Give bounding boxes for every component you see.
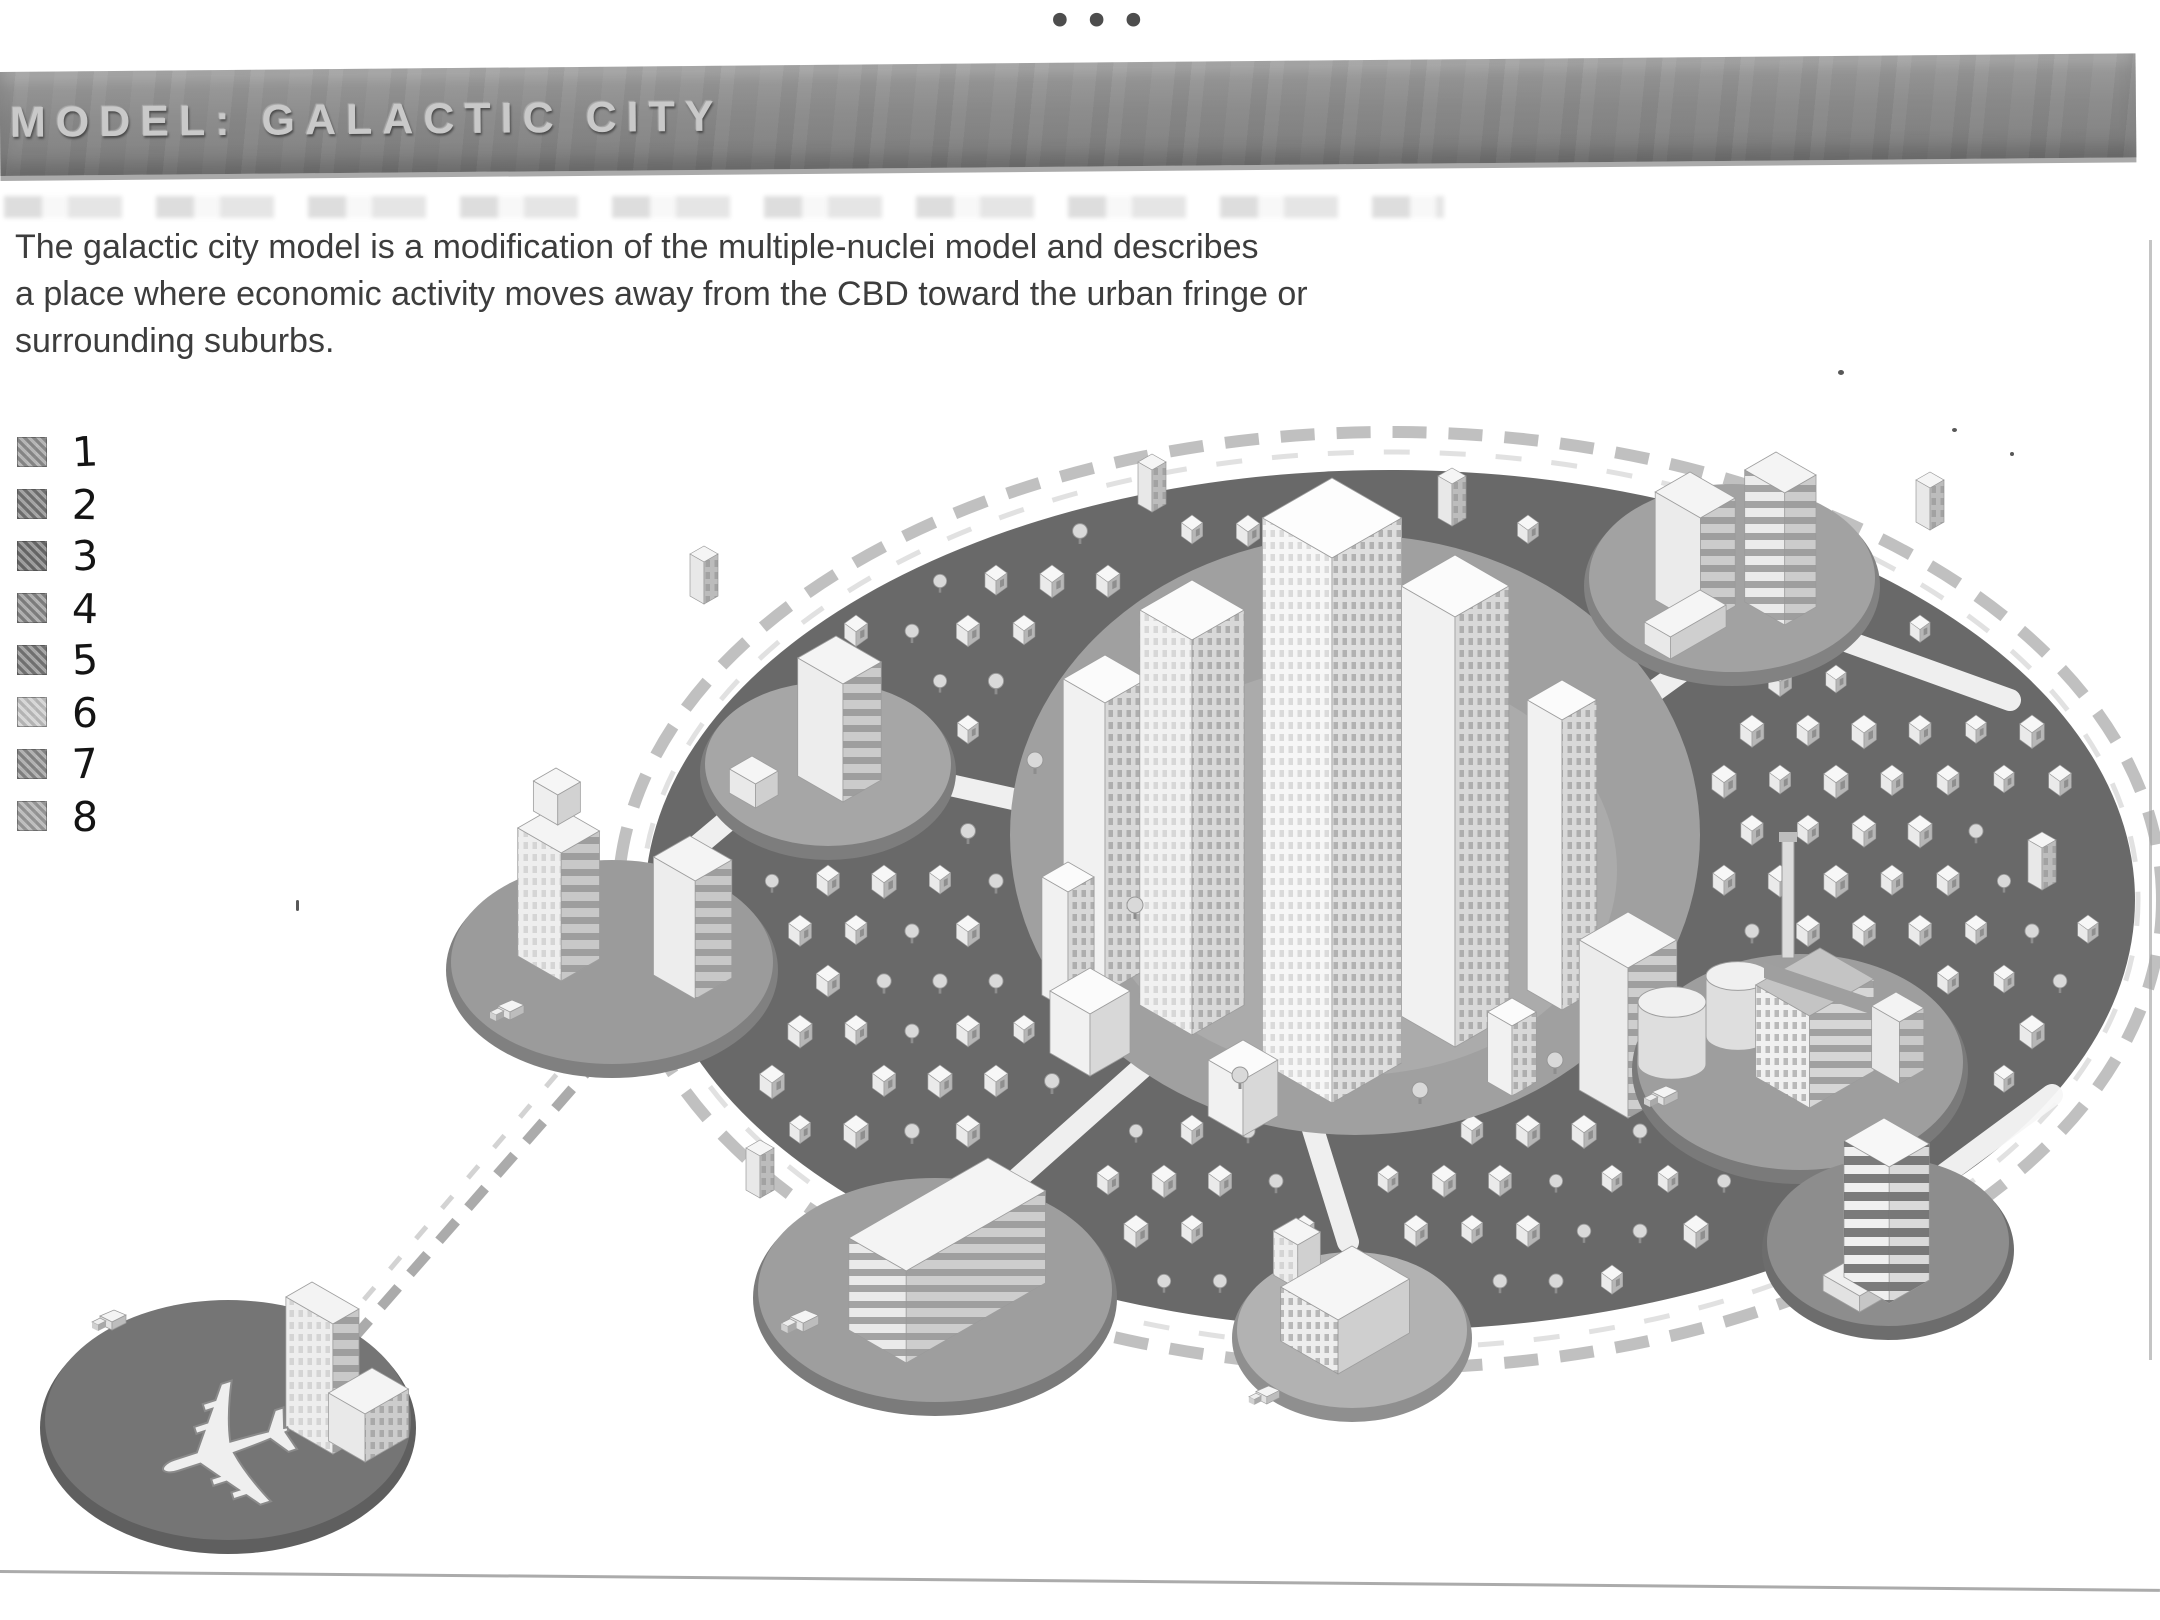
scan-speck — [1952, 428, 1957, 432]
edge-city-node-top-right — [1584, 452, 1880, 686]
galactic-city-model-illustration: ✈ — [0, 0, 2160, 1620]
page-edge-line — [2149, 240, 2152, 1360]
worksheet-page: ••• MODEL: GALACTIC CITY The galactic ci… — [0, 0, 2160, 1620]
scan-speck — [1838, 370, 1844, 375]
scan-speck — [2010, 452, 2014, 456]
scan-speck — [296, 900, 299, 911]
